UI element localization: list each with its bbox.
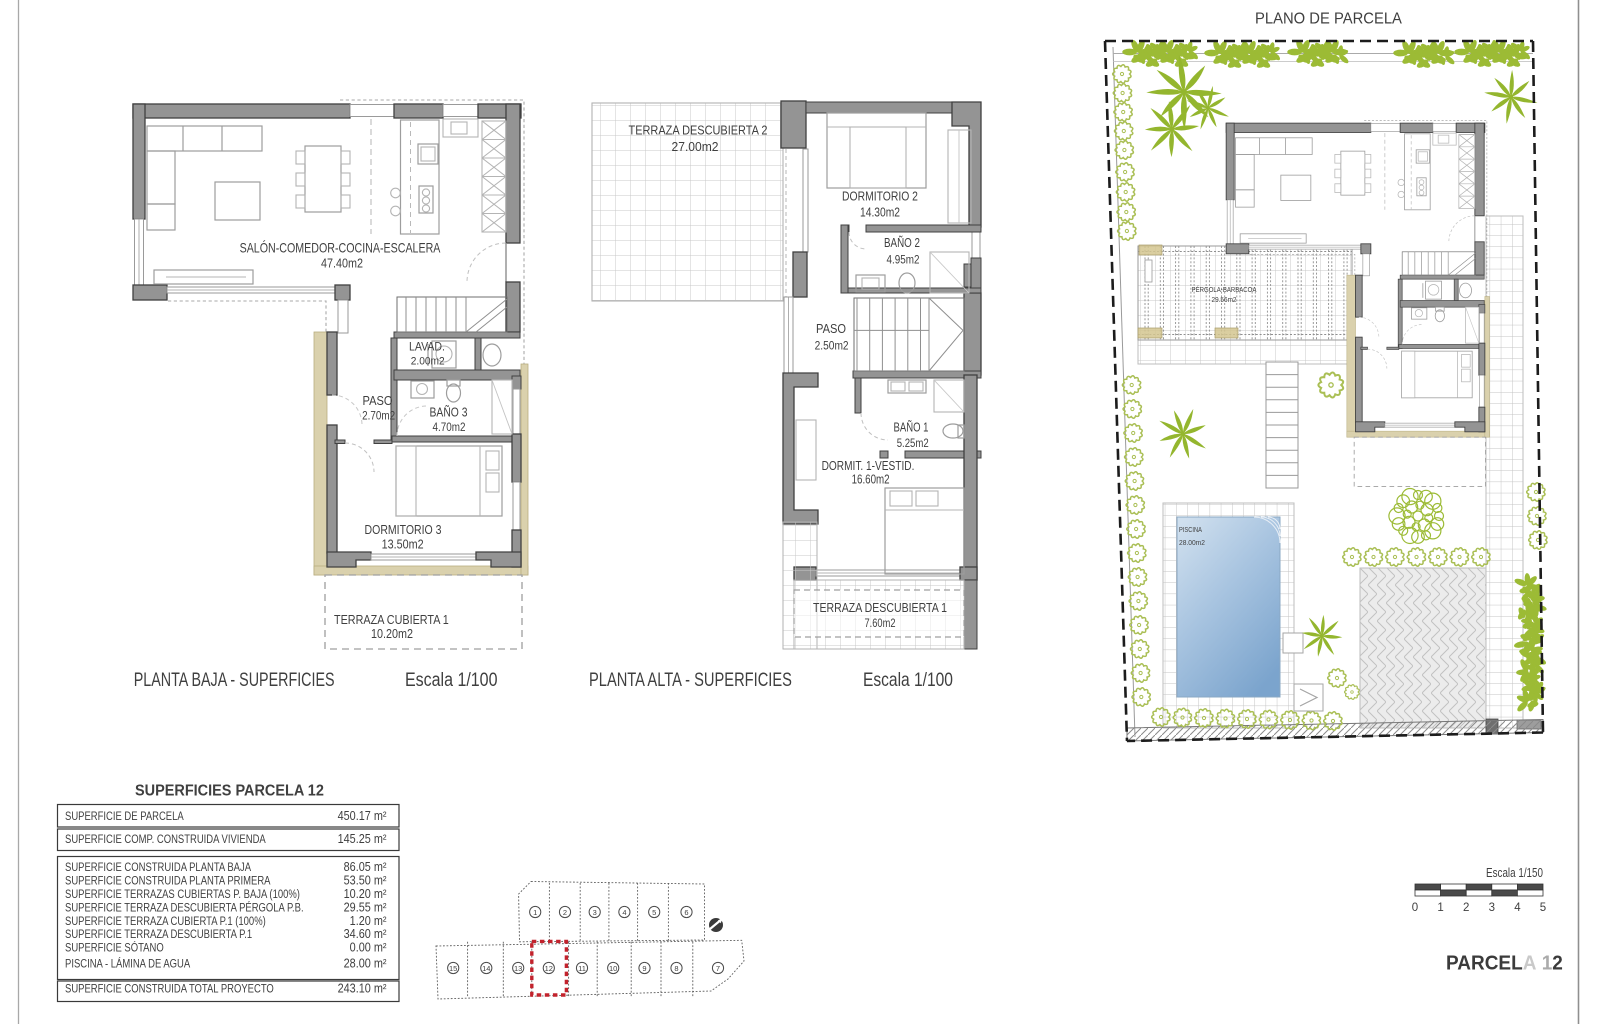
svg-text:1: 1: [1437, 902, 1443, 914]
svg-text:10: 10: [609, 964, 617, 973]
svg-text:1: 1: [533, 908, 537, 917]
svg-text:SUPERFICIE COMP. CONSTRUIDA VI: SUPERFICIE COMP. CONSTRUIDA VIVIENDA: [65, 833, 266, 846]
svg-text:PASO: PASO: [363, 393, 393, 408]
svg-text:2.70m2: 2.70m2: [362, 410, 395, 423]
svg-text:53.50 m²: 53.50 m²: [344, 874, 387, 888]
svg-text:0: 0: [1412, 902, 1418, 914]
svg-text:SUPERFICIE DE PARCELA: SUPERFICIE DE PARCELA: [65, 810, 184, 823]
svg-text:PISCINA: PISCINA: [1179, 527, 1203, 535]
svg-text:PISCINA - LÁMINA DE AGUA: PISCINA - LÁMINA DE AGUA: [65, 956, 191, 970]
svg-text:16.60m2: 16.60m2: [852, 473, 890, 486]
svg-text:3: 3: [593, 908, 597, 917]
svg-text:2.00m2: 2.00m2: [411, 355, 445, 368]
svg-text:BAÑO 3: BAÑO 3: [430, 406, 468, 420]
svg-text:SUPERFICIE SÓTANO: SUPERFICIE SÓTANO: [65, 941, 164, 955]
svg-text:4: 4: [622, 908, 626, 917]
svg-text:7.60m2: 7.60m2: [865, 617, 896, 630]
svg-text:27.00m2: 27.00m2: [672, 140, 719, 154]
svg-text:PLANTA ALTA - SUPERFICIES: PLANTA ALTA - SUPERFICIES: [589, 668, 792, 691]
svg-text:DORMITORIO 2: DORMITORIO 2: [842, 189, 918, 203]
svg-text:145.25 m²: 145.25 m²: [338, 833, 387, 847]
svg-text:28.00m2: 28.00m2: [1179, 540, 1205, 547]
svg-text:5: 5: [652, 908, 656, 917]
svg-text:SUPERFICIE TERRAZA CUBIERTA P.: SUPERFICIE TERRAZA CUBIERTA P.1 (100%): [65, 915, 266, 928]
svg-text:29.55 m²: 29.55 m²: [344, 901, 387, 915]
svg-text:TERRAZA CUBIERTA 1: TERRAZA CUBIERTA 1: [334, 612, 449, 627]
svg-text:SUPERFICIE CONSTRUIDA TOTAL PR: SUPERFICIE CONSTRUIDA TOTAL PROYECTO: [65, 983, 274, 996]
svg-text:Escala 1/100: Escala 1/100: [863, 668, 953, 690]
svg-text:10.20m2: 10.20m2: [371, 627, 413, 641]
svg-text:SUPERFICIE TERRAZA DESCUBIERTA: SUPERFICIE TERRAZA DESCUBIERTA P.1: [65, 928, 252, 941]
svg-text:Escala 1/150: Escala 1/150: [1486, 867, 1543, 880]
svg-text:4: 4: [1514, 902, 1521, 914]
svg-text:14: 14: [482, 964, 490, 973]
svg-text:0.00 m²: 0.00 m²: [350, 941, 387, 955]
svg-text:PÉRGOLA-BARBACOA: PÉRGOLA-BARBACOA: [1192, 284, 1257, 294]
svg-text:12: 12: [545, 964, 553, 973]
svg-text:PLANTA BAJA - SUPERFICIES: PLANTA BAJA - SUPERFICIES: [134, 669, 335, 691]
svg-text:450.17 m²: 450.17 m²: [338, 809, 387, 823]
svg-text:2: 2: [1463, 902, 1469, 914]
svg-text:34.60 m²: 34.60 m²: [344, 928, 387, 942]
svg-text:2: 2: [563, 908, 567, 917]
svg-text:13.50m2: 13.50m2: [382, 538, 424, 552]
svg-text:BAÑO 2: BAÑO 2: [884, 236, 920, 251]
svg-text:15: 15: [449, 964, 457, 973]
svg-text:29.56m2: 29.56m2: [1212, 297, 1237, 304]
svg-text:TERRAZA DESCUBIERTA 1: TERRAZA DESCUBIERTA 1: [813, 602, 947, 615]
svg-text:4.95m2: 4.95m2: [887, 254, 920, 267]
svg-text:DORMIT. 1-VESTID.: DORMIT. 1-VESTID.: [822, 459, 915, 473]
svg-text:47.40m2: 47.40m2: [321, 257, 363, 271]
svg-text:3: 3: [1489, 902, 1495, 914]
svg-text:SUPERFICIES PARCELA 12: SUPERFICIES PARCELA 12: [135, 782, 324, 800]
svg-text:LAVAD.: LAVAD.: [409, 341, 445, 354]
svg-text:5.25m2: 5.25m2: [897, 437, 929, 450]
svg-text:243.10 m²: 243.10 m²: [338, 982, 387, 996]
svg-text:13: 13: [514, 964, 522, 973]
svg-text:6: 6: [684, 908, 688, 917]
svg-text:5: 5: [1540, 902, 1546, 914]
svg-text:SUPERFICIE TERRAZA DESCUBIERTA: SUPERFICIE TERRAZA DESCUBIERTA PÉRGOLA P…: [65, 900, 304, 914]
svg-text:11: 11: [578, 964, 586, 973]
svg-text:PARCELA 12: PARCELA 12: [1446, 952, 1563, 975]
svg-text:1.20 m²: 1.20 m²: [350, 914, 387, 928]
svg-text:14.30m2: 14.30m2: [860, 207, 900, 220]
svg-text:PLANO DE PARCELA: PLANO DE PARCELA: [1255, 10, 1403, 28]
svg-text:28.00 m²: 28.00 m²: [344, 957, 387, 971]
svg-text:2.50m2: 2.50m2: [815, 340, 849, 353]
svg-text:4.70m2: 4.70m2: [433, 421, 466, 434]
svg-text:9: 9: [642, 964, 646, 973]
svg-text:TERRAZA DESCUBIERTA 2: TERRAZA DESCUBIERTA 2: [629, 123, 768, 138]
svg-text:7: 7: [716, 964, 720, 973]
svg-text:86.05 m²: 86.05 m²: [344, 861, 387, 875]
svg-text:8: 8: [674, 964, 678, 973]
svg-text:SUPERFICIE TERRAZAS CUBIERTAS: SUPERFICIE TERRAZAS CUBIERTAS P. BAJA (1…: [65, 888, 300, 901]
svg-text:BAÑO 1: BAÑO 1: [894, 420, 929, 435]
svg-text:DORMITORIO 3: DORMITORIO 3: [365, 522, 442, 537]
svg-text:Escala 1/100: Escala 1/100: [405, 669, 498, 691]
svg-text:SUPERFICIE CONSTRUIDA PLANTA B: SUPERFICIE CONSTRUIDA PLANTA BAJA: [65, 861, 252, 874]
svg-text:10.20 m²: 10.20 m²: [344, 887, 387, 901]
svg-text:PASO: PASO: [816, 321, 846, 336]
svg-text:SALÓN-COMEDOR-COCINA-ESCALERA: SALÓN-COMEDOR-COCINA-ESCALERA: [240, 239, 441, 256]
svg-text:SUPERFICIE CONSTRUIDA PLANTA P: SUPERFICIE CONSTRUIDA PLANTA PRIMERA: [65, 875, 271, 888]
